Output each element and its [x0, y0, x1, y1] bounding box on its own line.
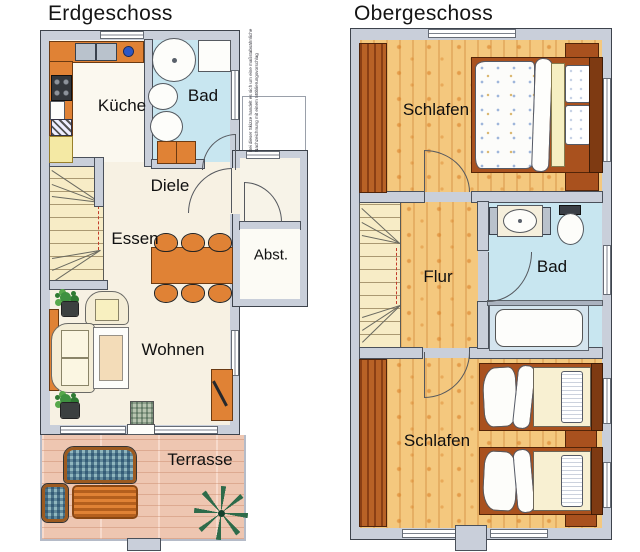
living-window-bottom-left — [60, 426, 126, 434]
dishwasher — [52, 120, 71, 135]
single-bed-headboard — [592, 448, 602, 514]
storage-room — [240, 229, 300, 299]
terrace-bump — [128, 539, 160, 550]
dining-chair — [209, 285, 231, 302]
vanity-side — [490, 208, 498, 234]
bath-eg-window — [231, 70, 239, 120]
disclaimer-note: Bei dieser Skizze handelt es sich um ein… — [248, 32, 259, 152]
single-bed-headboard — [592, 364, 602, 430]
coffee-table-top — [100, 336, 122, 380]
wall-bedroombottom-left — [360, 348, 422, 358]
bedroom-bottom-window-right1 — [603, 378, 611, 424]
room-label-schlafen-unten: Schlafen — [404, 431, 470, 451]
wall-bedroomtop-left — [360, 192, 424, 202]
plant-pot — [61, 403, 79, 418]
wardrobe-bottom — [360, 360, 386, 526]
fridge — [51, 102, 64, 119]
double-bed-sheet — [552, 64, 564, 166]
bedroom-bottom-window-right2 — [603, 462, 611, 508]
wall-stairs-right — [95, 158, 103, 206]
room-label-flur: Flur — [423, 267, 452, 287]
room-label-wohnen: Wohnen — [141, 340, 204, 360]
bath-cabinet — [158, 142, 195, 163]
palm-center — [218, 510, 225, 517]
washing-machine — [199, 41, 230, 71]
dining-chair — [155, 285, 177, 302]
toilet-og — [558, 214, 583, 244]
bedroom-bottom-window2 — [490, 529, 548, 538]
nightstand — [566, 172, 598, 190]
floorplan-image: Erdgeschoss — [0, 0, 640, 552]
stove-oven-unit — [131, 402, 153, 424]
bathtub — [496, 310, 582, 346]
dining-chair — [182, 285, 204, 302]
room-label-abst: Abst. — [254, 247, 288, 264]
double-bed-headboard — [590, 58, 602, 172]
double-bed-duvet — [476, 62, 534, 168]
kitchen-faucet — [124, 47, 133, 56]
wall-flur-bad-top — [478, 202, 488, 250]
single-bed-pillow — [483, 367, 518, 427]
shower-drain — [172, 58, 177, 63]
wall-flur-bad-bottom — [478, 302, 488, 348]
sofa-cushion — [62, 331, 88, 357]
room-label-essen: Essen — [111, 229, 158, 249]
page-title: Erdgeschoss — [48, 2, 173, 26]
bedroom-top-window-right — [603, 78, 611, 162]
toilet-tank — [560, 206, 580, 214]
garden-table — [74, 487, 136, 517]
wall-porch-abst — [240, 222, 300, 229]
chimney — [456, 526, 486, 550]
kitchen-cabinet — [50, 137, 72, 162]
tub-partition — [488, 301, 602, 305]
dining-chair — [182, 234, 204, 251]
bedroom-top-window — [428, 29, 516, 38]
vanity-side — [542, 208, 550, 234]
living-window-right — [231, 330, 239, 376]
nightstand — [566, 430, 596, 448]
disclaimer-line2: Nachzeichnung mit einem Möblierungsvorsc… — [254, 53, 259, 152]
garden-bench — [64, 447, 136, 483]
sink-eg — [149, 84, 177, 109]
disclaimer-line1: Bei dieser Skizze handelt es sich um ein… — [248, 29, 253, 152]
single-bed-folded-duvet — [562, 372, 582, 422]
single-bed-folded-duvet — [562, 456, 582, 506]
single-bed-pillow — [483, 451, 518, 511]
room-label-bad-og: Bad — [537, 257, 567, 277]
terrace-door — [128, 425, 154, 435]
room-label-bad-eg: Bad — [188, 86, 218, 106]
staircase-og — [360, 202, 400, 348]
armchair-cushion — [96, 300, 118, 320]
living-window-bottom-right — [154, 426, 218, 434]
room-label-kueche: Küche — [98, 96, 146, 116]
stair-cut-line — [98, 206, 99, 250]
garden-chair — [42, 484, 68, 522]
bedroom-bottom-window1 — [402, 529, 460, 538]
sofa-cushion — [62, 359, 88, 385]
toilet-eg — [151, 112, 182, 141]
porch-window — [246, 151, 280, 159]
dining-table — [152, 248, 232, 283]
room-label-schlafen-oben: Schlafen — [403, 100, 469, 120]
page-title-og: Obergeschoss — [354, 2, 493, 26]
kitchen-window — [100, 31, 144, 39]
wall-stairs-bottom — [50, 281, 107, 289]
bath-og-window — [603, 245, 611, 295]
wall-bedroomtop-right — [472, 192, 602, 202]
stair-cut-line — [396, 248, 397, 304]
double-bed-pillow — [566, 106, 590, 144]
dining-chair — [209, 234, 231, 251]
nightstand — [566, 514, 596, 526]
stove — [52, 76, 71, 100]
room-label-terrasse: Terrasse — [167, 450, 232, 470]
wardrobe-top — [360, 44, 386, 192]
double-bed-pillow — [566, 66, 590, 102]
sink-drain — [518, 219, 522, 223]
kitchen-sink-left — [76, 44, 95, 60]
room-label-diele: Diele — [151, 176, 190, 196]
kitchen-sink-right — [97, 44, 116, 60]
plant-pot — [62, 302, 78, 316]
